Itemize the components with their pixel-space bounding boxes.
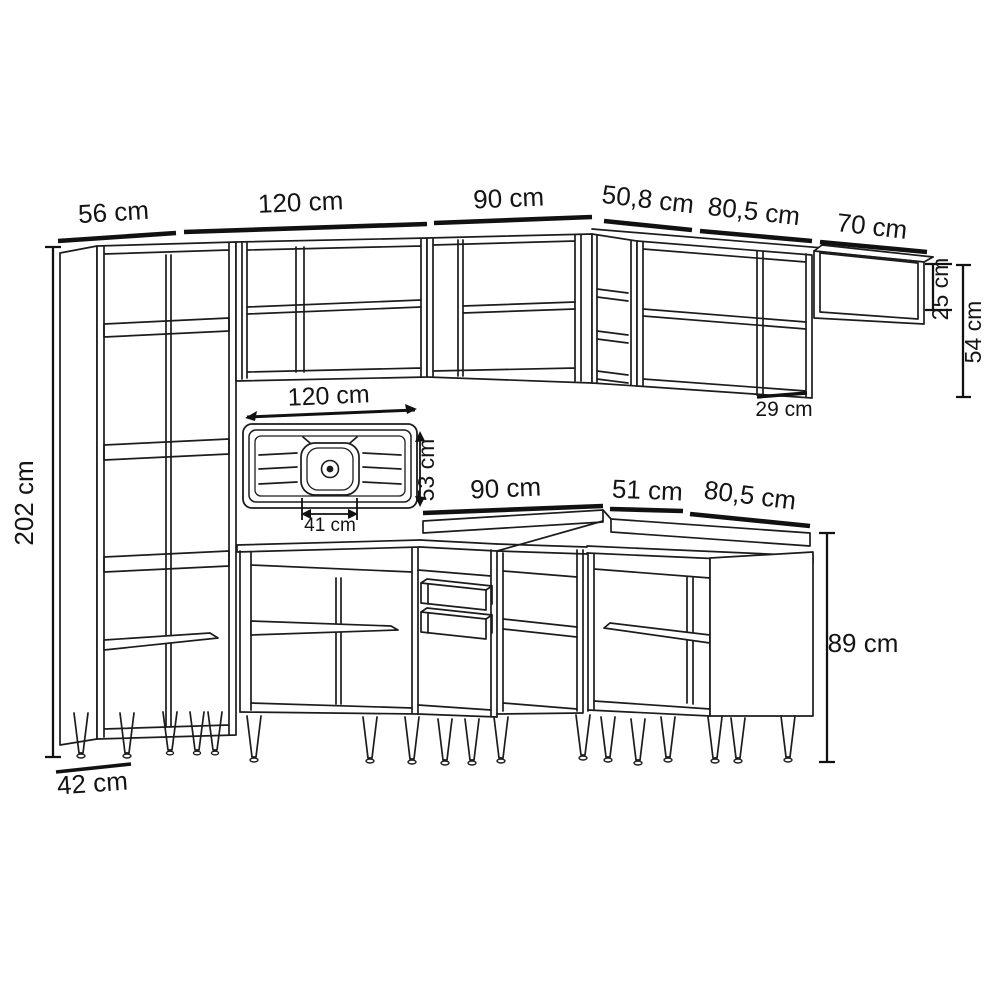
label-upper-depth-29: 29 cm	[755, 398, 812, 421]
dim-51	[610, 509, 683, 511]
wall-shelf-70	[814, 245, 933, 324]
upper-cabinet-120	[236, 238, 427, 381]
right-base-cabinet	[588, 552, 813, 716]
label-tall-width: 56 cm	[77, 195, 150, 229]
dim-80-5-base	[690, 514, 810, 526]
label-counter-90: 90 cm	[470, 471, 542, 504]
label-tall-height-202: 202 cm	[9, 460, 39, 545]
label-upper-54: 54 cm	[960, 301, 986, 364]
label-counter-51: 51 cm	[611, 473, 683, 506]
label-upper-805: 80,5 cm	[706, 191, 801, 231]
label-upper-90: 90 cm	[473, 181, 545, 214]
label-upper-508: 50,8 cm	[600, 179, 695, 219]
drawer-unit	[418, 550, 497, 717]
kitchen-dimension-diagram: 56 cm 120 cm 90 cm 50,8 cm 80,5 cm 70 cm…	[0, 0, 1000, 1000]
dim-90-upper	[434, 217, 592, 223]
label-base-height-89: 89 cm	[828, 628, 899, 658]
label-tall-depth-42: 42 cm	[56, 766, 129, 801]
right-side-panel	[710, 552, 813, 716]
dim-50-8	[604, 221, 692, 230]
corner-base-cabinet	[497, 550, 583, 714]
dim-56	[58, 233, 176, 241]
tall-cabinet	[60, 242, 236, 745]
diagram-canvas: 56 cm 120 cm 90 cm 50,8 cm 80,5 cm 70 cm…	[0, 0, 1000, 1000]
sink-base-cabinet	[240, 548, 418, 714]
label-shelf-70: 70 cm	[835, 207, 909, 245]
sink-top-view	[243, 424, 417, 508]
dim-120-upper	[184, 224, 427, 232]
dim-sink-120-line	[247, 410, 415, 417]
label-sink-53: 53 cm	[413, 439, 439, 502]
base-shelf	[604, 623, 710, 643]
label-base-805: 80,5 cm	[702, 475, 797, 516]
label-sink-120: 120 cm	[287, 380, 370, 412]
upper-cabinet-90	[427, 234, 592, 383]
upper-corner-cabinet	[592, 234, 637, 386]
label-sink-41: 41 cm	[304, 515, 356, 536]
label-upper-120: 120 cm	[257, 185, 343, 219]
base-shelf	[251, 621, 398, 635]
dim-202-line	[45, 247, 61, 757]
label-shelf-25: 25 cm	[927, 258, 953, 321]
